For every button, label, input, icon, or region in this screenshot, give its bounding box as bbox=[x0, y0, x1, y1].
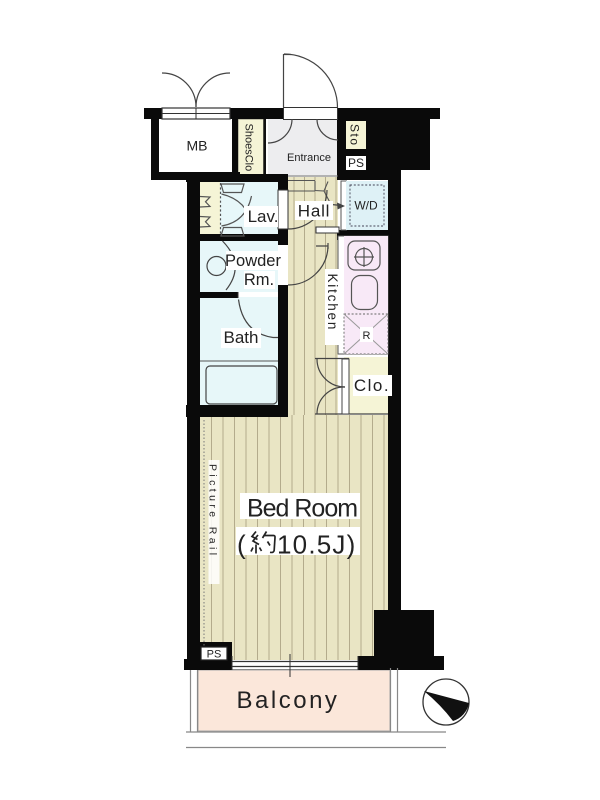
svg-text:PS: PS bbox=[348, 156, 364, 170]
svg-text:Entrance: Entrance bbox=[287, 152, 331, 164]
svg-text:Rm.: Rm. bbox=[244, 271, 274, 289]
svg-text:Sto: Sto bbox=[348, 124, 362, 147]
svg-text:Lav.: Lav. bbox=[248, 207, 279, 226]
svg-text:W/D: W/D bbox=[354, 199, 378, 213]
svg-text:MB: MB bbox=[187, 138, 208, 154]
svg-text:ShoesClo: ShoesClo bbox=[243, 124, 255, 172]
svg-text:Bath: Bath bbox=[224, 328, 259, 347]
svg-text:Balcony: Balcony bbox=[237, 687, 340, 714]
svg-text:R: R bbox=[363, 330, 371, 342]
svg-text:Hall: Hall bbox=[298, 202, 331, 221]
svg-text:Clo.: Clo. bbox=[354, 376, 390, 395]
svg-text:10.5J): 10.5J) bbox=[277, 530, 356, 560]
svg-text:Picture Rail: Picture Rail bbox=[207, 464, 219, 558]
svg-text:(: ( bbox=[237, 530, 246, 560]
svg-text:PS: PS bbox=[207, 649, 222, 661]
svg-text:Powder: Powder bbox=[225, 252, 281, 270]
svg-text:Bed Room: Bed Room bbox=[247, 495, 357, 523]
svg-text:Kitchen: Kitchen bbox=[325, 274, 340, 332]
